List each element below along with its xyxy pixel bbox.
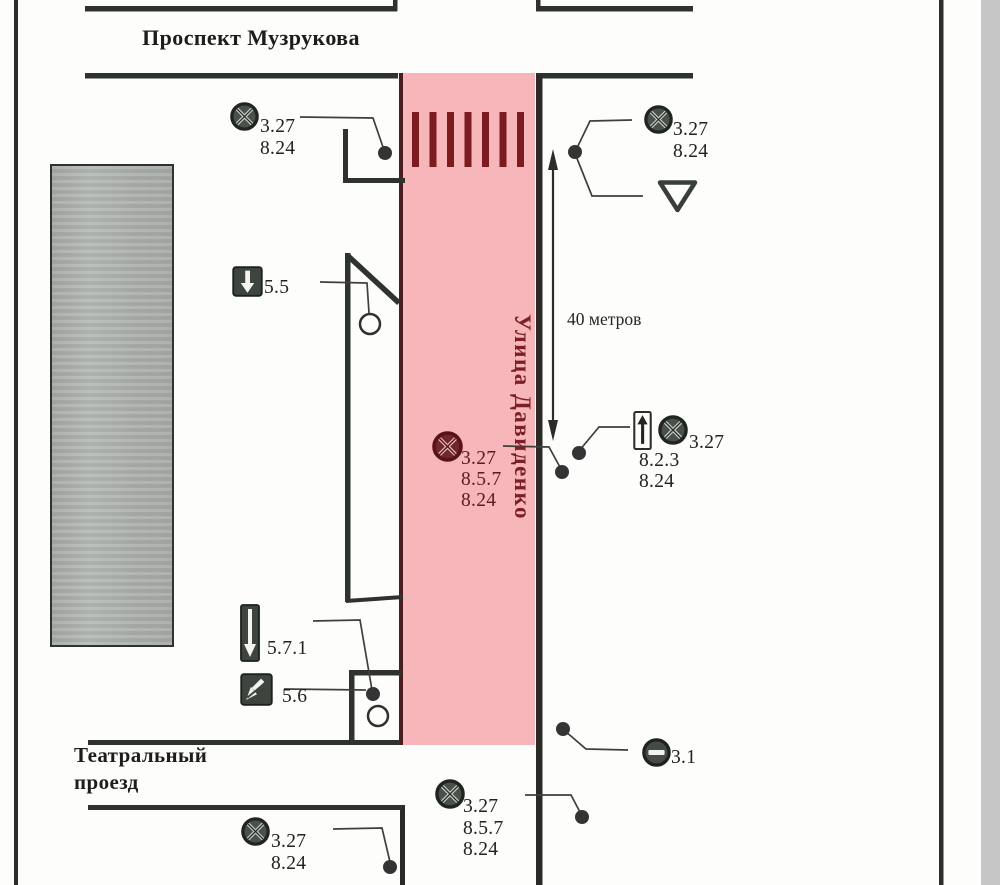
label-line: 3.27: [271, 831, 306, 852]
no-stopping-sign-icon: [230, 102, 259, 131]
sign-label-no-entry: 3.1: [671, 747, 696, 769]
one-way-exit-sign-icon: [240, 604, 260, 662]
no-stopping-sign-icon: [432, 431, 463, 462]
no-stopping-sign-icon: [241, 817, 270, 846]
label-line: 8.5.7: [463, 818, 504, 839]
sign-label-mid-zone: 3.278.5.78.24: [461, 448, 502, 511]
label-line: 3.27: [260, 116, 295, 137]
right-frame-line: [939, 0, 944, 885]
one-way-traffic-sign-icon: [232, 266, 263, 297]
building: [50, 164, 174, 647]
sign-label-bottom-mid: 3.278.5.78.24: [463, 796, 504, 861]
dimension-label: 40 метров: [567, 309, 641, 330]
label-line: 3.27: [463, 796, 498, 817]
street-name-vertical: Улица Давиденко: [501, 172, 535, 662]
sign-label-top-right: 3.278.24: [673, 119, 708, 163]
label-line: 3.27: [673, 119, 708, 140]
no-entry-sign-icon: [642, 738, 671, 767]
label-line: 3.27: [689, 432, 724, 453]
label-line: 8.2.3: [639, 450, 680, 471]
top-bay-outline: [343, 129, 405, 183]
passage-name: Театральныйпроезд: [74, 742, 207, 796]
restricted-zone-left-border: [399, 73, 403, 745]
label-line: 8.24: [673, 141, 708, 162]
passage-name-line2: проезд: [74, 770, 139, 794]
label-line: 5.6: [282, 686, 307, 707]
scan-edge-strip: [981, 0, 1000, 885]
left-frame-line: [14, 0, 18, 885]
direction-arrow-plate-icon: [633, 411, 652, 450]
street-left-curb-lower: [400, 805, 405, 885]
give-way-sign-icon: [655, 178, 700, 215]
sign-label-exit-one-way: 5.7.1: [267, 638, 308, 660]
avenue-name: Проспект Музрукова: [95, 25, 407, 51]
sign-label-mid-right-plate: 8.2.38.24: [639, 450, 680, 492]
label-line: 3.27: [461, 448, 496, 469]
label-line: 8.24: [461, 490, 496, 511]
middle-bay-outline: [345, 253, 403, 602]
label-line: 8.5.7: [461, 469, 502, 490]
label-line: 8.24: [639, 471, 674, 492]
label-line: 8.24: [271, 853, 306, 874]
dimension-arrow: [548, 149, 558, 441]
label-line: 8.24: [463, 839, 498, 860]
traffic-scheme-page: Проспект Музрукова Улица Давиденко Театр…: [0, 0, 1000, 885]
sign-label-one-way: 5.5: [264, 277, 289, 299]
sign-label-end-one-way: 5.6: [282, 686, 307, 708]
sign-label-bottom-left: 3.278.24: [271, 831, 306, 875]
label-line: 5.5: [264, 277, 289, 298]
end-of-one-way-sign-icon: [240, 673, 273, 706]
street-right-curb: [536, 75, 543, 885]
sign-label-top-left: 3.278.24: [260, 116, 295, 160]
passage-name-line1: Театральный: [74, 743, 207, 767]
sign-label-mid-right-circle: 3.27: [689, 432, 724, 454]
label-line: 3.1: [671, 747, 696, 768]
post-circle-bottom: [368, 706, 388, 726]
no-stopping-sign-icon: [658, 415, 688, 445]
no-stopping-sign-icon: [435, 779, 465, 809]
no-stopping-sign-icon: [644, 105, 673, 134]
post-circle-top: [360, 314, 380, 334]
label-line: 5.7.1: [267, 638, 308, 659]
label-line: 8.24: [260, 138, 295, 159]
